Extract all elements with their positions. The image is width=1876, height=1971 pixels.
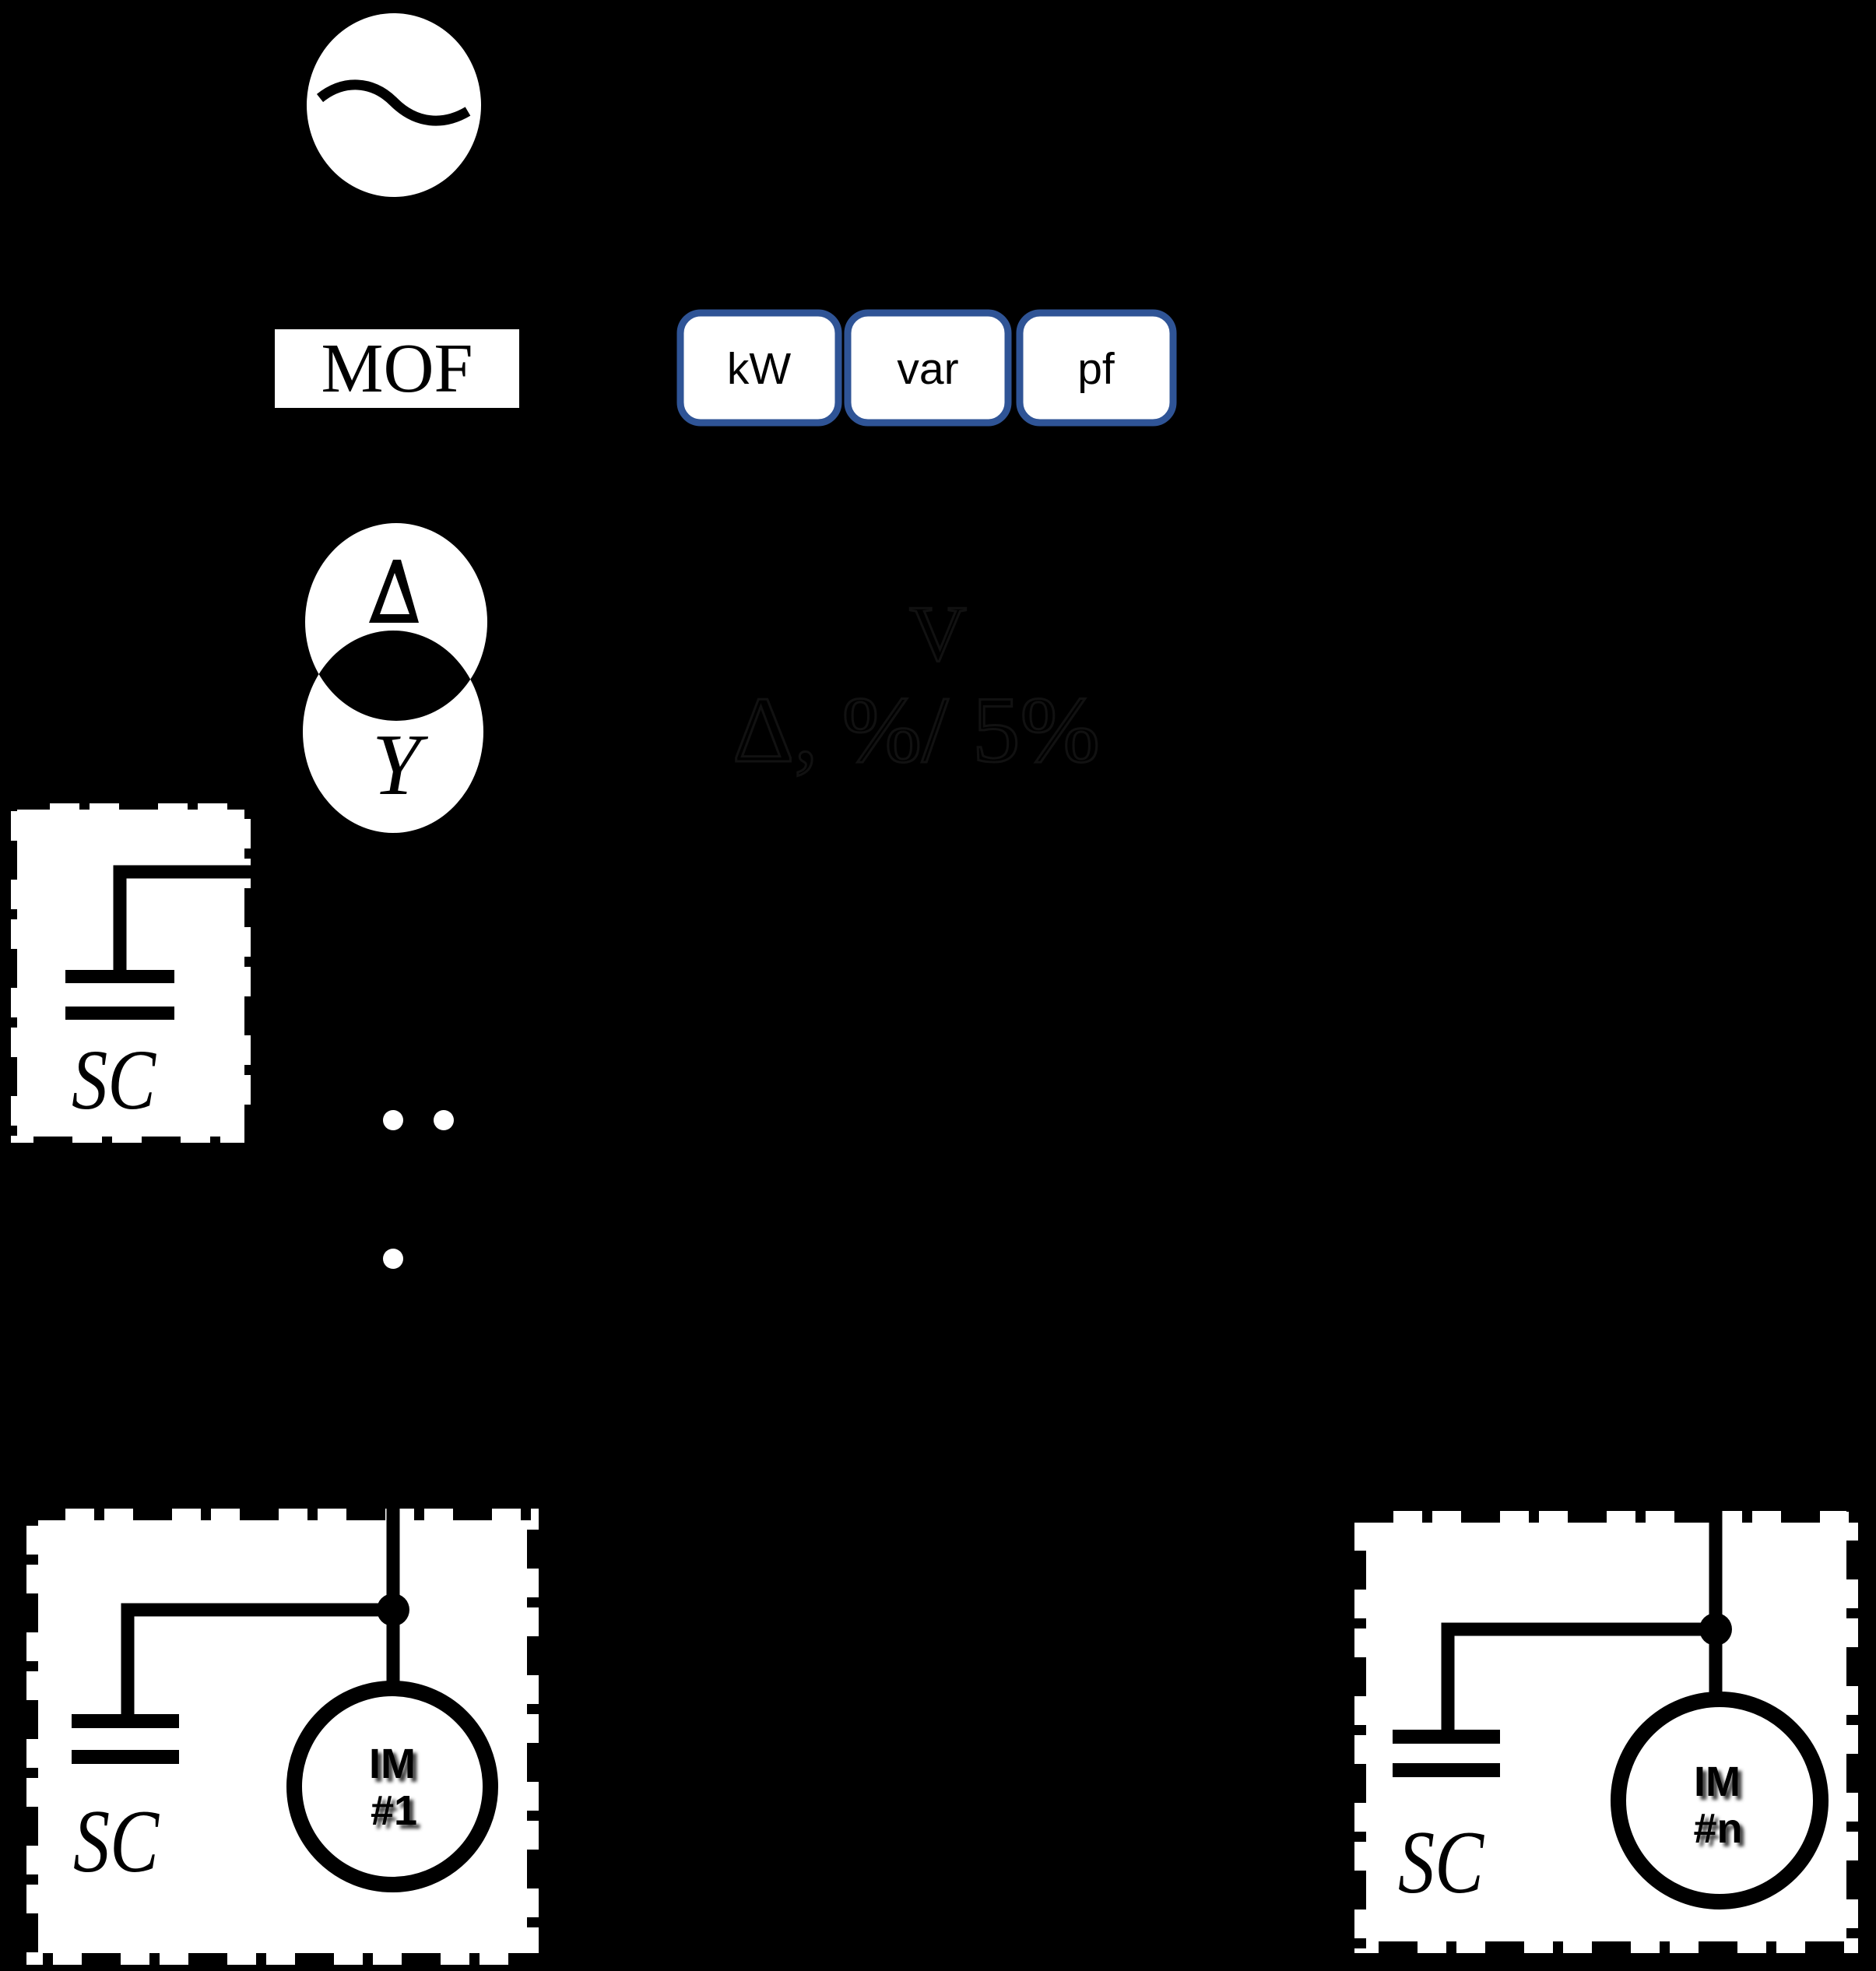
svg-text:kW: kW: [727, 344, 792, 394]
svg-text:V: V: [909, 590, 967, 678]
svg-text:#1: #1: [371, 1787, 417, 1834]
svg-text:var: var: [897, 344, 958, 394]
svg-text:#n: #n: [1693, 1805, 1742, 1852]
svg-text:IM: IM: [369, 1741, 416, 1787]
svg-text:MOF: MOF: [321, 330, 473, 407]
svg-text:pf: pf: [1077, 344, 1115, 394]
svg-text:SC: SC: [73, 1792, 160, 1892]
svg-text:Y: Y: [372, 717, 429, 813]
svg-text:SC: SC: [72, 1032, 156, 1127]
svg-text:Δ, %/ 5%: Δ, %/ 5%: [732, 678, 1100, 782]
svg-text:SC: SC: [1398, 1813, 1484, 1913]
svg-text:IM: IM: [1694, 1758, 1741, 1805]
